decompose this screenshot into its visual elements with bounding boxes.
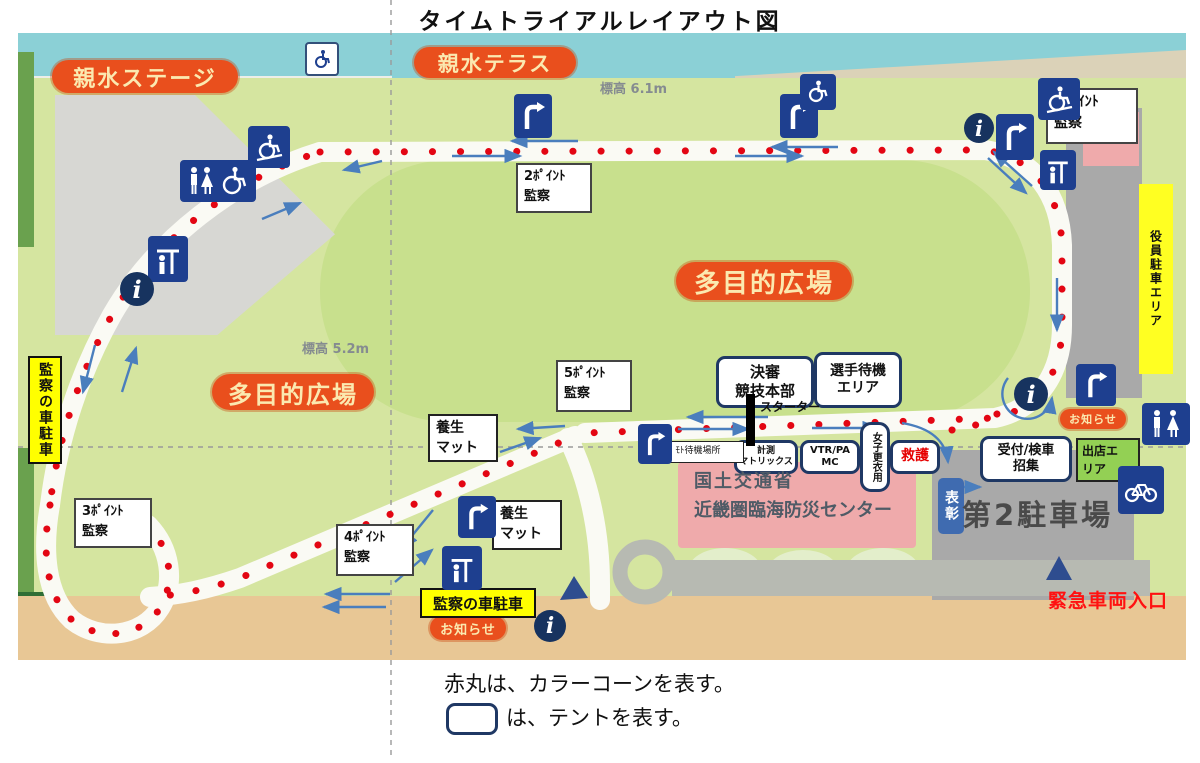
info-icon: i <box>120 272 154 306</box>
wheelchair-icon <box>305 42 339 76</box>
checkpoint-4: 4ﾎﾟｲﾝﾄ監察 <box>336 524 414 576</box>
roundabout <box>620 547 670 597</box>
area-stage: 親水ステージ <box>52 60 238 93</box>
entry-triangle <box>560 576 588 600</box>
building-name: 国土交通省 近畿圏臨海防災センター <box>694 468 892 526</box>
area-field-left: 多目的広場 <box>212 374 374 410</box>
notice-bottom: お知らせ <box>430 616 506 640</box>
elevation-mid: 標高 5.2m <box>302 338 369 357</box>
checkpoint-2: 2ﾎﾟｲﾝﾄ監察 <box>516 163 592 213</box>
award-label: 表彰 <box>938 478 964 534</box>
legend-tent-text: は、テントを表す。 <box>506 706 693 730</box>
turn-sign-icon <box>638 424 672 464</box>
toilet-icon <box>1142 403 1190 445</box>
area-field-right: 多目的広場 <box>676 262 852 300</box>
shower-icon <box>442 546 482 590</box>
info-icon: i <box>1014 377 1048 411</box>
marshal-parking-left: 監察の車駐車 <box>28 356 62 464</box>
marshal-parking-bottom: 監察の車駐車 <box>420 588 536 618</box>
start-bar <box>746 394 755 446</box>
checkpoint-5: 5ﾎﾟｲﾝﾄ監察 <box>556 360 632 412</box>
turn-sign-icon <box>996 114 1034 160</box>
bicycle-icon <box>1118 466 1164 514</box>
elevation-top: 標高 6.1m <box>600 78 667 97</box>
accessible-toilet-icon <box>180 160 256 202</box>
tent-first-aid: 救護 <box>890 440 940 474</box>
tent-athlete-waiting: 選手待機エリア <box>814 352 902 408</box>
checkpoint-3: 3ﾎﾟｲﾝﾄ監察 <box>74 498 152 548</box>
officials-parking-strip: 役員駐車エリア <box>1139 184 1173 374</box>
tent-symbol <box>446 703 498 735</box>
area-terrace: 親水テラス <box>414 47 576 78</box>
wheelchair-icon <box>800 74 836 110</box>
turn-sign-icon <box>514 94 552 138</box>
mat-box-1: 養生マット <box>428 414 498 462</box>
starter-label: スターター <box>760 398 820 415</box>
turn-sign-icon <box>1076 364 1116 406</box>
emergency-entrance-label: 緊急車両入口 <box>1048 586 1168 613</box>
page-title: タイムトライアルレイアウト図 <box>0 2 1200 36</box>
legend-tent: は、テントを表す。 <box>446 702 693 735</box>
parking2-label: 第2駐車場 <box>962 492 1113 534</box>
mat-box-2: 養生マット <box>492 500 562 550</box>
legend-cones-text: 赤丸は、カラーコーンを表す。 <box>444 672 735 696</box>
info-icon: i <box>964 113 994 143</box>
notice-right: お知らせ <box>1060 409 1126 429</box>
info-icon: i <box>534 610 566 642</box>
shower-icon <box>1040 150 1076 190</box>
turn-sign-icon <box>458 496 496 538</box>
wheelchair-ramp-icon <box>1038 78 1080 120</box>
layout-map: タイムトライアルレイアウト図 赤丸は、カラーコーンを表す。 は、テントを表す。 … <box>0 0 1200 763</box>
shower-icon <box>148 236 188 282</box>
legend-cones: 赤丸は、カラーコーンを表す。 <box>444 668 735 698</box>
tent-reception: 受付/検車招集 <box>980 436 1072 482</box>
